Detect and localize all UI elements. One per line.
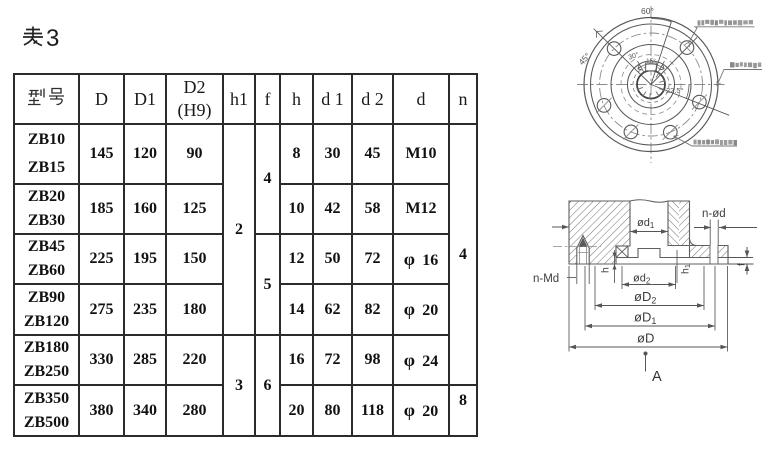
svg-text:15°: 15° [646, 57, 656, 65]
svg-text:øD2: øD2 [634, 289, 656, 306]
svg-text:45°: 45° [576, 51, 592, 67]
svg-text:22.5°: 22.5° [666, 86, 684, 95]
svg-text:f: f [737, 263, 748, 266]
svg-text:n-ød: n-ød [702, 208, 726, 220]
svg-text:30°: 30° [627, 51, 640, 62]
svg-text:h1: h1 [680, 264, 693, 274]
svg-text:ød1: ød1 [637, 217, 655, 230]
svg-text:h: h [600, 267, 612, 273]
svg-text:60°: 60° [641, 6, 654, 16]
svg-text:ød2: ød2 [633, 273, 651, 286]
svg-text:n-Md: n-Md [533, 273, 559, 285]
svg-text:A: A [652, 369, 662, 385]
svg-text:øD: øD [637, 331, 654, 346]
svg-text:øD1: øD1 [634, 310, 656, 327]
